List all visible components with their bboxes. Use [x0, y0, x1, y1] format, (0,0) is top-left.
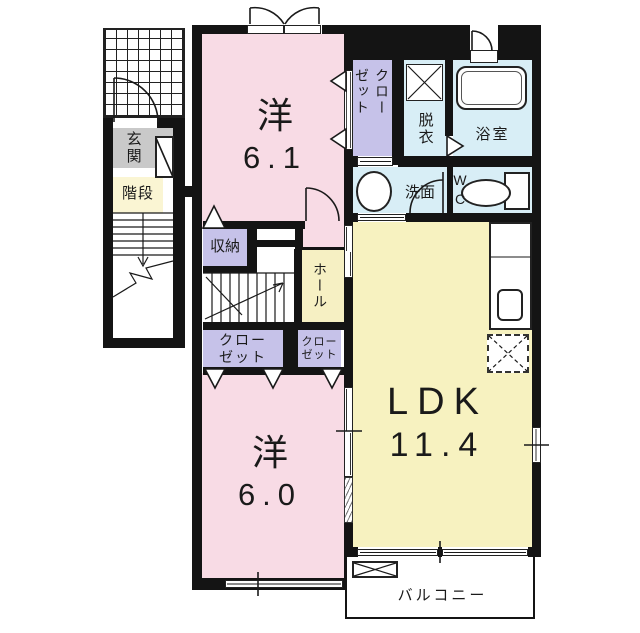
washing-machine-pan: [406, 64, 443, 101]
bedroom1-label: 洋 6.1: [210, 88, 340, 183]
wall-segment: [283, 330, 298, 367]
room-name: 洋: [257, 95, 293, 136]
room-name: LDK: [387, 381, 488, 425]
washroom-label: 洗面: [396, 182, 444, 204]
wall-segment: [344, 213, 358, 222]
wall-segment: [392, 60, 404, 165]
wall-segment: [398, 156, 541, 167]
closet-right-label: クロー ゼット: [299, 333, 340, 364]
closet-label-line: ゼット: [302, 349, 338, 362]
room-name: 洋: [252, 432, 288, 473]
bathtub-inner-line: [461, 71, 522, 105]
wall-segment: [344, 547, 358, 557]
wall-segment: [294, 249, 302, 322]
entrance-label: 玄関: [122, 129, 144, 167]
washroom-top-sliding-door: [357, 157, 393, 166]
closet-label-line: ゼット: [352, 68, 372, 150]
room-area: 6.0: [238, 477, 302, 513]
wall-segment: [498, 25, 541, 60]
wall-segment: [103, 118, 113, 348]
dressing-label: 脱衣: [415, 104, 435, 154]
ldk-label: LDK 11.4: [360, 378, 515, 468]
entry-porch-tiles: [103, 28, 185, 118]
kitchen-sink: [497, 289, 523, 321]
bedroom1-casement-window: [250, 8, 319, 24]
closet-label-line: ゼット: [219, 349, 267, 365]
bathroom-window: [472, 31, 492, 51]
wall-segment: [344, 156, 358, 167]
bedroom1-window: [247, 25, 284, 34]
wall-segment: [445, 60, 453, 136]
floor-plan: 洋 6.1 洋 6.0 LDK 11.4 バルコニー 玄関 階段 収納 ホール …: [0, 0, 640, 633]
balcony-equipment-box: [352, 561, 398, 578]
bedroom1-window: [284, 25, 321, 34]
bedroom2-window: [225, 580, 343, 588]
bedroom1-door-zone: [303, 229, 344, 249]
room-area: 6.1: [243, 140, 307, 176]
closet-left-label: クロー ゼット: [205, 332, 281, 365]
wall-segment: [532, 60, 541, 427]
staircase-label: 階段: [114, 181, 162, 207]
bathroom-window-frame: [470, 50, 498, 63]
wall-segment: [103, 338, 185, 348]
wall-segment: [344, 25, 470, 60]
hall-ldk-sliding-door: [344, 225, 353, 278]
wall-segment: [532, 463, 541, 547]
room-area: 11.4: [390, 426, 486, 465]
ldk-balcony-window: [442, 549, 528, 556]
balcony-label: バルコニー: [370, 586, 515, 606]
wall-segment: [247, 229, 257, 266]
wall-segment: [192, 25, 247, 34]
closet-label-line: クロー: [302, 336, 338, 349]
exterior-stairs: [113, 213, 173, 297]
washroom-bottom-sliding-door: [357, 214, 406, 221]
toilet-bowl: [461, 179, 511, 207]
wall-segment: [322, 25, 344, 34]
wall-segment: [173, 118, 185, 348]
wall-segment: [192, 34, 202, 590]
wall-segment: [203, 266, 257, 273]
wall-segment: [406, 213, 541, 222]
wall-segment: [203, 367, 344, 375]
refrigerator-space: [487, 334, 529, 373]
wall-segment: [257, 240, 298, 247]
toilet-label: WC: [452, 169, 468, 211]
closet-upper-label: クロー ゼット: [352, 68, 392, 150]
bedroom2-label: 洋 6.0: [205, 425, 335, 520]
wall-segment: [528, 547, 541, 557]
wall-segment: [344, 278, 353, 387]
interior-stairs: [203, 273, 294, 322]
storage-label: 収納: [204, 236, 246, 258]
bathroom-label: 浴室: [455, 123, 530, 147]
closet-label-line: クロー: [372, 68, 392, 150]
wall-segment: [203, 322, 344, 330]
ldk-balcony-window: [357, 549, 438, 556]
shoe-cabinet: [155, 136, 174, 178]
wall-segment: [203, 221, 305, 229]
wall-segment: [157, 118, 185, 128]
hall-label: ホール: [310, 255, 330, 317]
bathtub: [456, 66, 527, 110]
closet-label-line: クロー: [219, 332, 267, 348]
wall-segment: [173, 186, 192, 197]
ldk-side-window: [532, 427, 541, 463]
wash-basin: [356, 171, 392, 212]
wall-segment: [303, 247, 344, 250]
sliding-door-pocket: [344, 477, 353, 523]
bedroom2-ldk-sliding-door: [344, 387, 353, 477]
